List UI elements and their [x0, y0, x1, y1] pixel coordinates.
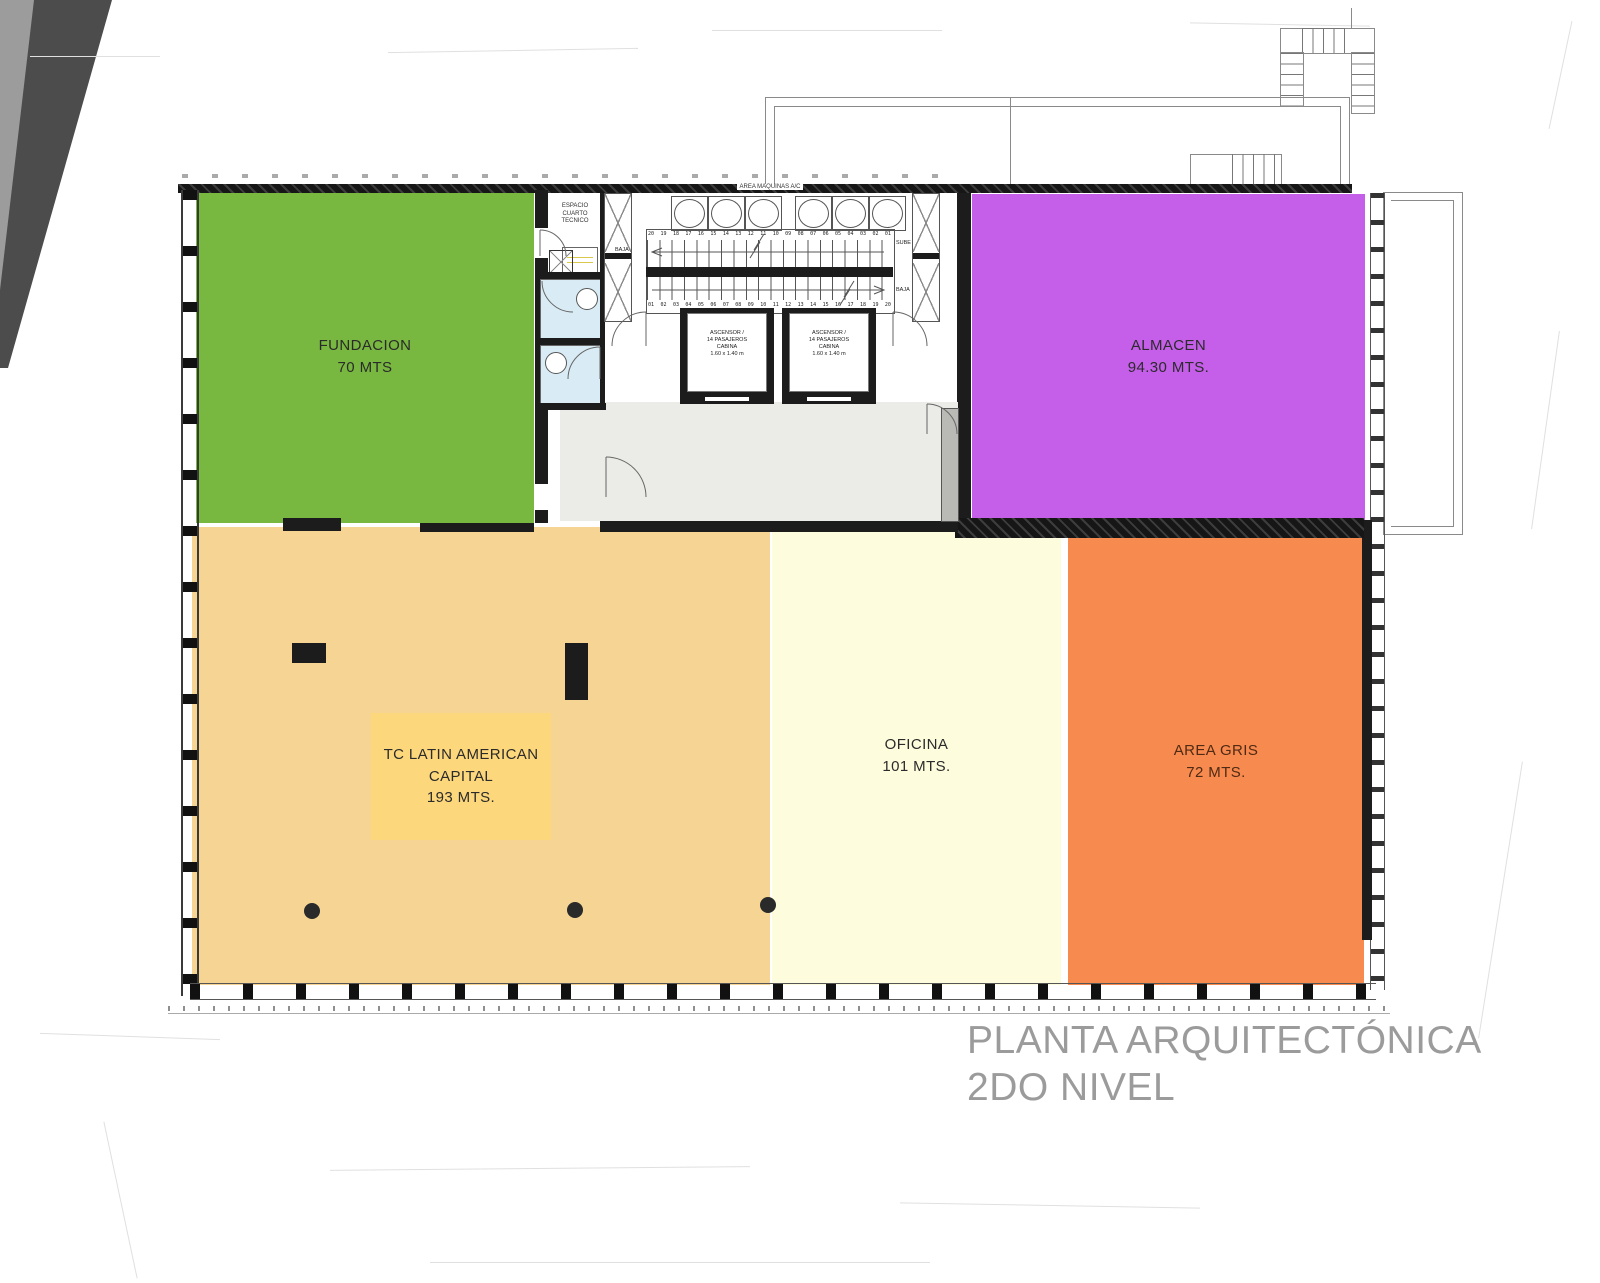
- column-dot: [760, 897, 776, 913]
- fundacion-south-wall-segment: [283, 518, 341, 531]
- zone-area-gris: AREA GRIS 72 MTS.: [1068, 538, 1364, 985]
- sketch-line: [330, 1166, 750, 1171]
- tech-room-label: ESPACIO CUARTO TECNICO: [552, 203, 598, 226]
- zone-tc-latin-label: TC LATIN AMERICAN CAPITAL 193 MTS.: [384, 744, 539, 809]
- zone-area: 94.30 MTS.: [1128, 357, 1210, 379]
- exterior-stair-line: [1351, 8, 1352, 28]
- elevator-lobby-floor: [560, 402, 958, 521]
- stair-upper-run: [646, 240, 895, 267]
- stair-upper-step-numbers: 2019181716151413121110090807060504030201: [648, 231, 891, 239]
- zone-fundacion-label: FUNDACION 70 MTS: [319, 335, 412, 379]
- south-facade-mullions: [190, 983, 1376, 1000]
- zone-name: ALMACEN: [1128, 335, 1210, 357]
- exterior-stair-right-run: [1351, 52, 1375, 114]
- stair-sube-label: SUBE: [896, 240, 911, 246]
- zone-name: CAPITAL: [384, 766, 539, 788]
- zone-almacen: ALMACEN 94.30 MTS.: [972, 194, 1365, 520]
- zone-area: 101 MTS.: [882, 756, 950, 778]
- roof-terrace-divider: [1010, 97, 1011, 186]
- zone-tc-latin-label-box: TC LATIN AMERICAN CAPITAL 193 MTS.: [371, 713, 551, 840]
- ac-unit: [671, 196, 708, 231]
- bathroom-1: [540, 279, 603, 344]
- service-wall: [536, 338, 604, 345]
- elevator-label: ASCENSOR /14 PASAJEROSCABINA1.60 x 1.40 …: [680, 330, 774, 359]
- sketch-line: [1531, 331, 1560, 529]
- service-wall: [536, 272, 602, 279]
- tech-room-line: ESPACIO: [552, 203, 598, 211]
- sketch-line: [1478, 762, 1523, 1039]
- sketch-line: [1190, 22, 1370, 26]
- lobby-south-wall: [600, 521, 958, 532]
- small-exterior-stair-steps: [1232, 154, 1280, 186]
- toilet-fixture: [545, 352, 567, 374]
- sketch-line: [1549, 21, 1573, 129]
- elevator-door: [807, 397, 851, 401]
- sketch-line: [40, 1033, 220, 1040]
- ac-unit: [832, 196, 869, 231]
- zone-name: OFICINA: [882, 734, 950, 756]
- dimension-ticks-top: [182, 174, 962, 178]
- stair-lower-run: [646, 277, 895, 300]
- stair-stringer: [646, 267, 893, 277]
- zone-name: FUNDACION: [319, 335, 412, 357]
- core-west-wall: [535, 190, 548, 228]
- stair-baja-label: BAJA: [896, 287, 910, 293]
- ac-area-label-text: AREA MAQUINAS A/C: [737, 184, 802, 190]
- zone-fundacion: FUNDACION 70 MTS: [196, 191, 534, 523]
- vent-shaft-icon: [912, 193, 940, 322]
- sketch-line: [430, 1262, 930, 1263]
- zone-area: 193 MTS.: [384, 787, 539, 809]
- zone-oficina-label: OFICINA 101 MTS.: [882, 734, 950, 778]
- toilet-fixture: [576, 288, 598, 310]
- elevator-label: ASCENSOR /14 PASAJEROSCABINA1.60 x 1.40 …: [782, 330, 876, 359]
- elevator-shaft-2: ASCENSOR /14 PASAJEROSCABINA1.60 x 1.40 …: [782, 308, 876, 404]
- zone-name: AREA GRIS: [1174, 740, 1258, 762]
- ac-unit: [795, 196, 832, 231]
- east-wall: [1362, 520, 1372, 940]
- zone-area: 70 MTS: [319, 357, 412, 379]
- west-facade-mullions: [181, 190, 199, 996]
- elevator-shaft-1: ASCENSOR /14 PASAJEROSCABINA1.60 x 1.40 …: [680, 308, 774, 404]
- service-shaft-gray: [941, 408, 959, 522]
- zone-name: TC LATIN AMERICAN: [384, 744, 539, 766]
- dimension-ruler-ticks: [168, 1006, 1390, 1011]
- exterior-stair-left-run: [1280, 52, 1304, 107]
- column-dot: [304, 903, 320, 919]
- drawing-title-line2: 2DO NIVEL: [967, 1065, 1482, 1112]
- column-block: [565, 643, 588, 700]
- ac-unit: [708, 196, 745, 231]
- zone-oficina: OFICINA 101 MTS.: [772, 527, 1061, 985]
- fundacion-south-wall-segment: [420, 523, 534, 532]
- tech-room-line: CUARTO: [552, 211, 598, 219]
- ac-unit: [869, 196, 906, 231]
- east-facade-mullions: [1370, 193, 1385, 990]
- shaft-box: [549, 250, 573, 274]
- column-block: [292, 643, 326, 663]
- sketch-line: [103, 1122, 137, 1279]
- sketch-line: [900, 1202, 1200, 1208]
- zone-area-gris-label: AREA GRIS 72 MTS.: [1174, 740, 1258, 784]
- blueprint-page: FUNDACION 70 MTS ALMACEN 94.30 MTS. TC L…: [0, 0, 1600, 1283]
- core-west-wall: [535, 510, 548, 523]
- sketch-line: [712, 30, 942, 31]
- drawing-title: PLANTA ARQUITECTÓNICA 2DO NIVEL: [967, 1018, 1482, 1112]
- vent-shaft-icon: [604, 193, 632, 322]
- drawing-title-line1: PLANTA ARQUITECTÓNICA: [967, 1018, 1482, 1065]
- ac-area-label: AREA MAQUINAS A/C: [690, 184, 850, 192]
- zone-almacen-label: ALMACEN 94.30 MTS.: [1128, 335, 1210, 379]
- sketch-line: [388, 48, 638, 53]
- ac-unit: [745, 196, 782, 231]
- elevator-door: [705, 397, 749, 401]
- zone-area: 72 MTS.: [1174, 762, 1258, 784]
- core-east-wall: [957, 193, 971, 523]
- exterior-stair-steps: [1302, 28, 1345, 53]
- almacen-south-wall: [955, 518, 1364, 538]
- east-terrace-inner: [1391, 200, 1454, 527]
- dimension-ruler-line: [168, 1013, 1390, 1014]
- service-wall: [536, 403, 606, 410]
- tech-room-line: TECNICO: [552, 218, 598, 226]
- column-dot: [567, 902, 583, 918]
- sketch-line: [30, 56, 160, 57]
